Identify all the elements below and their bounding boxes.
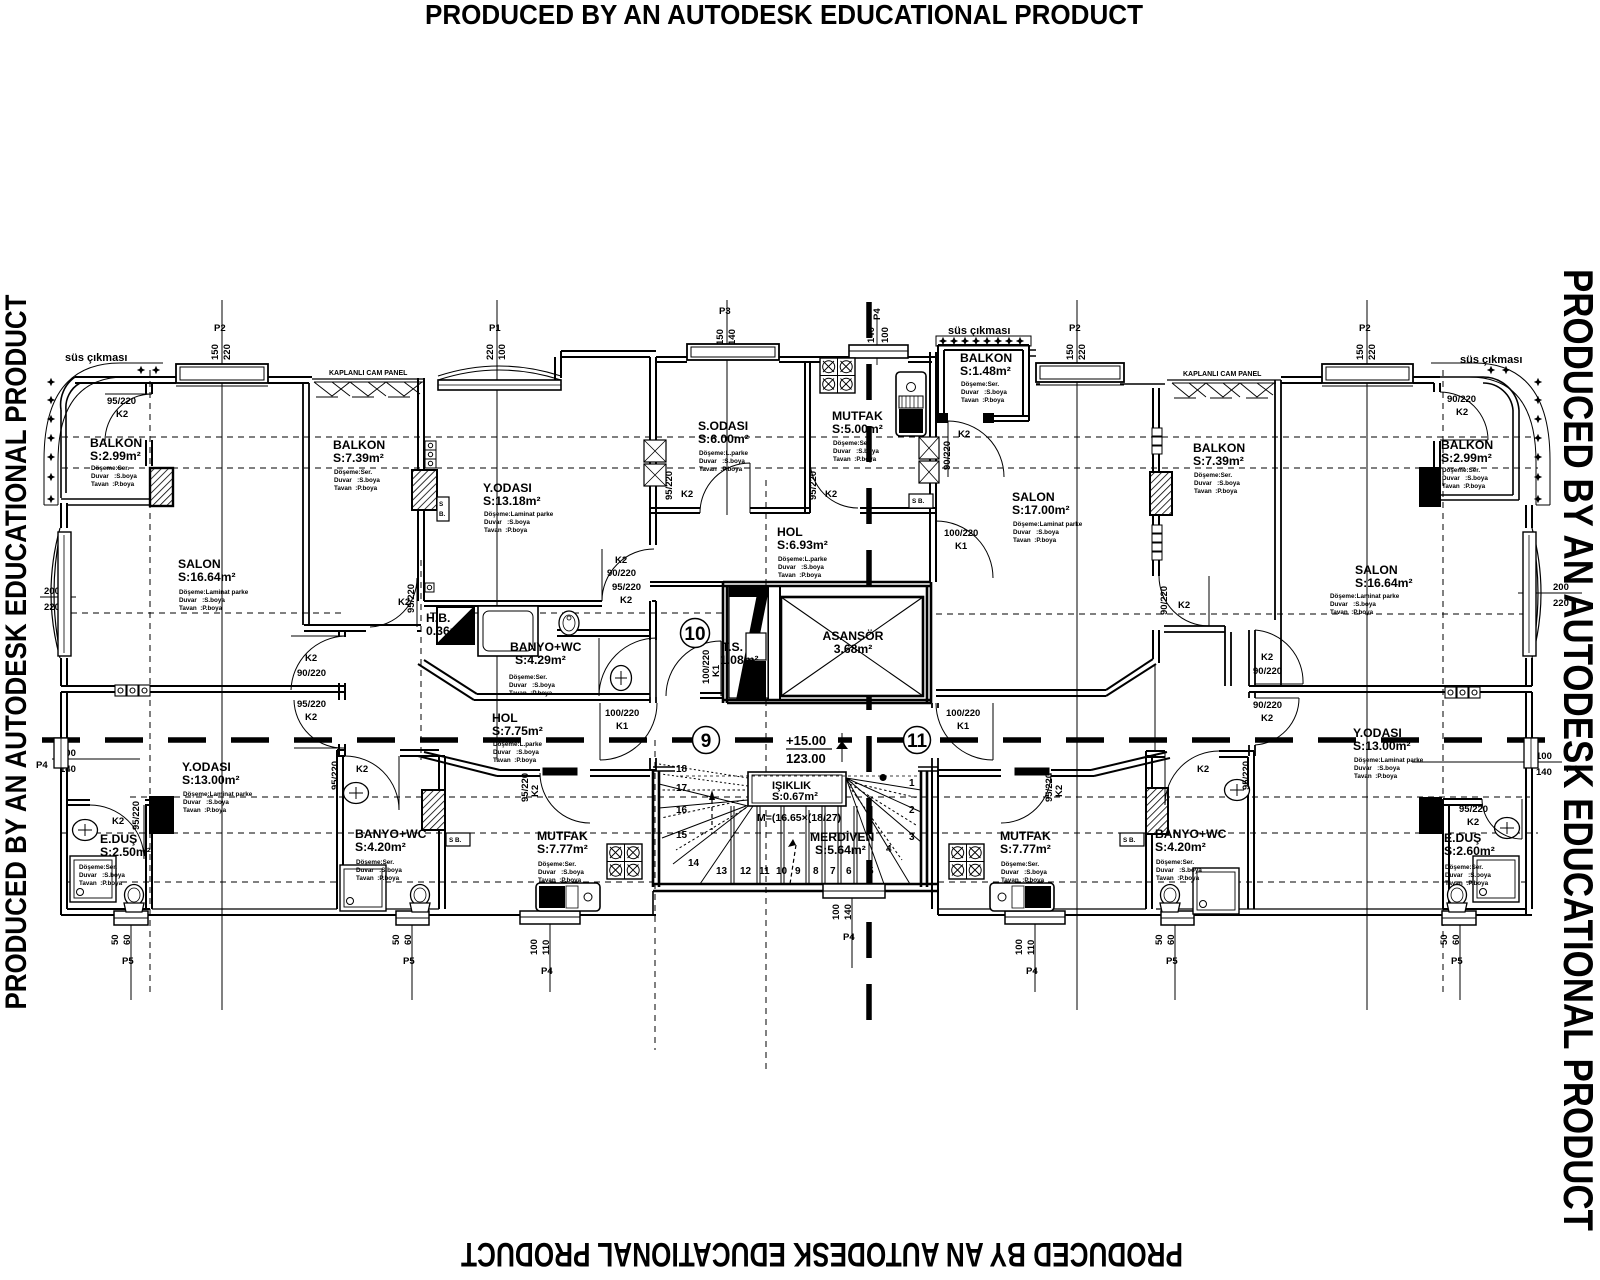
- svg-text:Döşeme:Ser.: Döşeme:Ser.: [1001, 861, 1039, 868]
- svg-text:PRODUCED BY AN AUTODESK EDUCAT: PRODUCED BY AN AUTODESK EDUCATIONAL PROD…: [425, 0, 1143, 30]
- svg-text:P4: P4: [1566, 764, 1578, 775]
- svg-text:90/220: 90/220: [942, 441, 953, 470]
- svg-text:S.ODASI: S.ODASI: [698, 419, 748, 433]
- svg-text:Döşeme:Laminat parke: Döşeme:Laminat parke: [1354, 757, 1424, 764]
- svg-text:HOL: HOL: [777, 525, 803, 539]
- svg-text:Duvar :S.boya: Duvar :S.boya: [1445, 872, 1491, 879]
- svg-text:Duvar :S.boya: Duvar :S.boya: [334, 477, 380, 484]
- svg-text:Döşeme:Laminat parke: Döşeme:Laminat parke: [484, 511, 554, 518]
- svg-text:123.00: 123.00: [786, 751, 826, 766]
- svg-text:Tavan :P.boya: Tavan :P.boya: [833, 456, 877, 463]
- svg-text:K2: K2: [1054, 785, 1065, 797]
- svg-text:4: 4: [886, 844, 892, 855]
- svg-text:SALON: SALON: [1355, 563, 1398, 577]
- svg-text:95/220: 95/220: [1459, 804, 1488, 815]
- svg-text:E.DUŞ: E.DUŞ: [100, 832, 137, 846]
- svg-text:K2: K2: [305, 712, 317, 723]
- svg-text:Tavan :P.boya: Tavan :P.boya: [778, 572, 822, 579]
- svg-text:220: 220: [1553, 598, 1569, 609]
- svg-text:S B.: S B.: [449, 837, 461, 844]
- svg-text:süs çıkması: süs çıkması: [948, 325, 1010, 337]
- svg-text:150: 150: [210, 344, 221, 360]
- svg-text:Döşeme:Laminat parke: Döşeme:Laminat parke: [1013, 521, 1083, 528]
- svg-text:K2: K2: [1261, 652, 1273, 663]
- svg-text:K2: K2: [305, 653, 317, 664]
- svg-text:Tavan :P.boya: Tavan :P.boya: [1330, 609, 1374, 616]
- svg-text:P4: P4: [872, 308, 883, 320]
- svg-text:Tavan :P.boya: Tavan :P.boya: [1445, 880, 1489, 887]
- svg-text:P2: P2: [1359, 323, 1371, 334]
- svg-text:9: 9: [701, 731, 712, 752]
- svg-text:3.68m²: 3.68m²: [834, 642, 873, 656]
- svg-text:Duvar :S.boya: Duvar :S.boya: [493, 749, 539, 756]
- svg-text:BALKON: BALKON: [333, 438, 385, 452]
- svg-text:10: 10: [776, 866, 788, 877]
- svg-text:1.08m²: 1.08m²: [720, 653, 759, 667]
- svg-text:0.36m²: 0.36m²: [426, 624, 465, 638]
- svg-text:Tavan :P.boya: Tavan :P.boya: [79, 880, 123, 887]
- svg-text:Döşeme:Ser.: Döşeme:Ser.: [538, 861, 576, 868]
- svg-text:60: 60: [122, 934, 133, 945]
- svg-text:50: 50: [391, 934, 402, 945]
- svg-text:SALON: SALON: [1012, 490, 1055, 504]
- svg-text:50: 50: [110, 934, 121, 945]
- svg-text:14: 14: [688, 858, 700, 869]
- svg-text:Duvar :S.boya: Duvar :S.boya: [1013, 529, 1059, 536]
- svg-text:220: 220: [485, 344, 496, 360]
- svg-text:P1: P1: [489, 323, 501, 334]
- svg-text:K2: K2: [1178, 600, 1190, 611]
- svg-text:Y.ODASI: Y.ODASI: [182, 760, 231, 774]
- svg-text:Döşeme:Ser.: Döşeme:Ser.: [356, 859, 394, 866]
- svg-text:BANYO+WC: BANYO+WC: [510, 640, 582, 654]
- svg-text:K2: K2: [1456, 407, 1468, 418]
- svg-text:BALKON: BALKON: [960, 351, 1012, 365]
- svg-text:P5: P5: [1451, 956, 1463, 967]
- svg-text:S:7.39m²: S:7.39m²: [1193, 454, 1244, 468]
- svg-text:Döşeme:Ser.: Döşeme:Ser.: [334, 469, 372, 476]
- svg-text:E.DUŞ: E.DUŞ: [1444, 831, 1481, 845]
- svg-text:Tavan :P.boya: Tavan :P.boya: [493, 757, 537, 764]
- svg-text:K2: K2: [1467, 817, 1479, 828]
- svg-text:95/220: 95/220: [131, 801, 142, 830]
- svg-text:K2: K2: [356, 764, 368, 775]
- svg-text:S:1.48m²: S:1.48m²: [960, 364, 1011, 378]
- svg-text:Duvar :S.boya: Duvar :S.boya: [1330, 601, 1376, 608]
- svg-text:Duvar :S.boya: Duvar :S.boya: [1194, 480, 1240, 487]
- svg-text:Duvar :S.boya: Duvar :S.boya: [1442, 475, 1488, 482]
- svg-text:+15.00: +15.00: [786, 733, 826, 748]
- svg-text:S:7.77m²: S:7.77m²: [1000, 842, 1051, 856]
- svg-text:T.S.: T.S.: [722, 640, 743, 654]
- svg-text:Döşeme:Ser.: Döşeme:Ser.: [1445, 864, 1483, 871]
- svg-text:MUTFAK: MUTFAK: [832, 409, 883, 423]
- svg-text:11: 11: [907, 731, 928, 752]
- svg-text:100/220: 100/220: [946, 708, 980, 719]
- svg-text:Duvar :S.boya: Duvar :S.boya: [179, 597, 225, 604]
- svg-text:Döşeme:Laminat parke: Döşeme:Laminat parke: [183, 791, 253, 798]
- svg-text:95/220: 95/220: [330, 761, 341, 790]
- svg-text:90/220: 90/220: [297, 668, 326, 679]
- svg-text:95/220: 95/220: [297, 699, 326, 710]
- svg-text:100: 100: [497, 344, 508, 360]
- svg-text:P2: P2: [214, 323, 226, 334]
- svg-text:BALKON: BALKON: [1193, 441, 1245, 455]
- svg-text:S:4.20m²: S:4.20m²: [1155, 840, 1206, 854]
- svg-text:P5: P5: [122, 956, 134, 967]
- svg-text:140: 140: [727, 329, 738, 345]
- svg-text:Duvar :S.boya: Duvar :S.boya: [961, 389, 1007, 396]
- svg-text:220: 220: [222, 344, 233, 360]
- svg-text:Tavan :P.boya: Tavan :P.boya: [356, 875, 400, 882]
- svg-text:Y.ODASI: Y.ODASI: [1353, 726, 1402, 740]
- svg-text:90/220: 90/220: [607, 568, 636, 579]
- svg-text:100: 100: [880, 327, 891, 343]
- svg-text:Döşeme:Ser.: Döşeme:Ser.: [961, 381, 999, 388]
- svg-text:Döşeme:Laminat parke: Döşeme:Laminat parke: [179, 589, 249, 596]
- svg-text:Döşeme:Laminat parke: Döşeme:Laminat parke: [1330, 593, 1400, 600]
- svg-text:Duvar :S.boya: Duvar :S.boya: [833, 448, 879, 455]
- svg-text:95/220: 95/220: [808, 471, 819, 500]
- svg-text:P5: P5: [1166, 956, 1178, 967]
- svg-text:150: 150: [1355, 344, 1366, 360]
- svg-text:Döşeme:L.parke: Döşeme:L.parke: [778, 556, 827, 563]
- svg-text:10: 10: [684, 624, 705, 645]
- svg-text:90/220: 90/220: [1447, 394, 1476, 405]
- svg-text:Tavan :P.boya: Tavan :P.boya: [509, 690, 553, 697]
- svg-text:140: 140: [843, 904, 854, 920]
- svg-text:S:2.99m²: S:2.99m²: [90, 449, 141, 463]
- svg-text:S:5.64m²: S:5.64m²: [815, 843, 866, 857]
- svg-text:Tavan :P.boya: Tavan :P.boya: [1442, 483, 1486, 490]
- svg-text:110: 110: [541, 940, 552, 955]
- svg-text:12: 12: [740, 866, 752, 877]
- svg-text:PRODUCED BY AN AUTODESK EDUCAT: PRODUCED BY AN AUTODESK EDUCATIONAL PROD…: [1555, 269, 1600, 1231]
- svg-text:BANYO+WC: BANYO+WC: [1155, 827, 1227, 841]
- svg-text:S B.: S B.: [1123, 837, 1135, 844]
- svg-text:P2: P2: [1069, 323, 1081, 334]
- svg-text:Duvar :S.boya: Duvar :S.boya: [356, 867, 402, 874]
- svg-text:60: 60: [403, 934, 414, 945]
- svg-text:MUTFAK: MUTFAK: [537, 829, 588, 843]
- svg-text:S: S: [439, 501, 443, 508]
- svg-text:K2: K2: [116, 409, 128, 420]
- svg-text:Tavan :P.boya: Tavan :P.boya: [961, 397, 1005, 404]
- svg-text:18: 18: [676, 764, 688, 775]
- svg-text:K2: K2: [615, 555, 627, 566]
- svg-text:200: 200: [1553, 582, 1569, 593]
- svg-text:Duvar :S.boya: Duvar :S.boya: [699, 458, 745, 465]
- svg-text:HOL: HOL: [492, 711, 518, 725]
- svg-text:Duvar :S.boya: Duvar :S.boya: [509, 682, 555, 689]
- svg-text:süs çıkması: süs çıkması: [65, 352, 127, 364]
- svg-text:95/220: 95/220: [406, 584, 417, 613]
- svg-text:7: 7: [830, 866, 836, 877]
- svg-text:Duvar :S.boya: Duvar :S.boya: [778, 564, 824, 571]
- svg-text:MERDİVEN: MERDİVEN: [810, 829, 874, 844]
- svg-text:ASANSÖR: ASANSÖR: [823, 628, 884, 643]
- svg-text:S:7.75m²: S:7.75m²: [492, 724, 543, 738]
- svg-text:Döşeme:Ser.: Döşeme:Ser.: [1442, 467, 1480, 474]
- svg-text:60: 60: [1451, 934, 1462, 945]
- svg-text:15: 15: [676, 830, 688, 841]
- svg-text:2: 2: [909, 805, 915, 816]
- svg-text:90/220: 90/220: [1253, 700, 1282, 711]
- svg-text:60: 60: [1166, 934, 1177, 945]
- svg-text:17: 17: [676, 783, 688, 794]
- svg-text:90/220: 90/220: [1253, 666, 1282, 677]
- svg-text:95/220: 95/220: [1241, 761, 1252, 790]
- svg-text:13: 13: [716, 866, 728, 877]
- svg-text:95/220: 95/220: [664, 471, 675, 500]
- svg-text:110: 110: [1026, 940, 1037, 955]
- svg-text:süs çıkması: süs çıkması: [1460, 354, 1522, 366]
- svg-text:140: 140: [1536, 767, 1552, 778]
- svg-text:5: 5: [868, 866, 874, 877]
- svg-text:220: 220: [1077, 344, 1088, 360]
- svg-text:Duvar :S.boya: Duvar :S.boya: [183, 799, 229, 806]
- svg-text:S:6.93m²: S:6.93m²: [777, 538, 828, 552]
- svg-text:S:13.18m²: S:13.18m²: [483, 494, 541, 508]
- svg-text:S:4.20m²: S:4.20m²: [355, 840, 406, 854]
- svg-text:S:13.00m²: S:13.00m²: [1353, 739, 1411, 753]
- svg-text:K2: K2: [958, 429, 970, 440]
- svg-text:K2: K2: [681, 489, 693, 500]
- svg-text:9: 9: [795, 866, 801, 877]
- svg-text:50: 50: [1439, 934, 1450, 945]
- svg-text:Döşeme:Ser.: Döşeme:Ser.: [833, 440, 871, 447]
- svg-text:Döşeme:Ser.: Döşeme:Ser.: [1156, 859, 1194, 866]
- svg-text:KAPLANLI CAM PANEL: KAPLANLI CAM PANEL: [1183, 371, 1262, 378]
- svg-text:Tavan :P.boya: Tavan :P.boya: [538, 877, 582, 884]
- svg-text:100: 100: [1014, 939, 1025, 955]
- svg-text:K2: K2: [825, 489, 837, 500]
- svg-text:Duvar :S.boya: Duvar :S.boya: [538, 869, 584, 876]
- svg-text:Tavan :P.boya: Tavan :P.boya: [334, 485, 378, 492]
- svg-text:S:7.39m²: S:7.39m²: [333, 451, 384, 465]
- svg-text:Tavan :P.boya: Tavan :P.boya: [1013, 537, 1057, 544]
- svg-text:Duvar :S.boya: Duvar :S.boya: [79, 872, 125, 879]
- svg-text:Duvar :S.boya: Duvar :S.boya: [1354, 765, 1400, 772]
- svg-text:K1: K1: [955, 541, 968, 552]
- svg-text:M=(16.65×(18/27): M=(16.65×(18/27): [757, 812, 841, 824]
- svg-text:H.B.: H.B.: [426, 611, 450, 625]
- svg-text:Tavan :P.boya: Tavan :P.boya: [1354, 773, 1398, 780]
- svg-text:100/220: 100/220: [944, 528, 978, 539]
- svg-text:95/220: 95/220: [612, 582, 641, 593]
- svg-text:Döşeme:L.parke: Döşeme:L.parke: [493, 741, 542, 748]
- svg-text:Döşeme:Ser.: Döşeme:Ser.: [91, 465, 129, 472]
- svg-text:K1: K1: [616, 721, 629, 732]
- svg-text:Döşeme:Ser.: Döşeme:Ser.: [79, 864, 117, 871]
- svg-text:1: 1: [909, 778, 915, 789]
- svg-text:S:13.00m²: S:13.00m²: [182, 773, 240, 787]
- svg-text:95/220: 95/220: [107, 396, 136, 407]
- svg-text:SALON: SALON: [178, 557, 221, 571]
- svg-text:100: 100: [831, 904, 842, 920]
- svg-text:S:16.64m²: S:16.64m²: [1355, 576, 1413, 590]
- svg-text:Tavan :P.boya: Tavan :P.boya: [1194, 488, 1238, 495]
- svg-text:P4: P4: [36, 760, 48, 771]
- svg-text:S:2.60m²: S:2.60m²: [1444, 844, 1495, 858]
- svg-text:8: 8: [813, 866, 819, 877]
- svg-text:Duvar :S.boya: Duvar :S.boya: [1156, 867, 1202, 874]
- svg-text:S:2.50m²: S:2.50m²: [100, 845, 151, 859]
- svg-text:K1: K1: [957, 721, 970, 732]
- svg-text:Döşeme:Ser.: Döşeme:Ser.: [1194, 472, 1232, 479]
- svg-text:BANYO+WC: BANYO+WC: [355, 827, 427, 841]
- svg-text:16: 16: [676, 805, 688, 816]
- svg-text:S:6.00m²: S:6.00m²: [698, 432, 749, 446]
- svg-text:S:16.64m²: S:16.64m²: [178, 570, 236, 584]
- svg-text:S:17.00m²: S:17.00m²: [1012, 503, 1070, 517]
- svg-text:K2: K2: [1261, 713, 1273, 724]
- svg-text:B.: B.: [439, 511, 446, 518]
- svg-text:6: 6: [846, 866, 852, 877]
- svg-text:BALKON: BALKON: [90, 436, 142, 450]
- svg-text:S:4.29m²: S:4.29m²: [515, 653, 566, 667]
- svg-text:P5: P5: [403, 956, 415, 967]
- svg-text:50: 50: [1154, 934, 1165, 945]
- svg-text:P4: P4: [1026, 966, 1038, 977]
- svg-text:Döşeme:Ser.: Döşeme:Ser.: [509, 674, 547, 681]
- svg-text:P4: P4: [541, 966, 553, 977]
- svg-text:K2: K2: [1197, 764, 1209, 775]
- svg-text:Y.ODASI: Y.ODASI: [483, 481, 532, 495]
- svg-text:PRODUCED BY AN AUTODESK EDUCAT: PRODUCED BY AN AUTODESK EDUCATIONAL PROD…: [461, 1235, 1183, 1273]
- svg-text:90/220: 90/220: [1159, 586, 1170, 615]
- svg-text:Tavan :P.boya: Tavan :P.boya: [91, 481, 135, 488]
- svg-text:140: 140: [866, 327, 877, 343]
- svg-text:11: 11: [759, 866, 770, 877]
- svg-text:Tavan :P.boya: Tavan :P.boya: [699, 466, 743, 473]
- svg-text:BALKON: BALKON: [1441, 438, 1493, 452]
- svg-text:3: 3: [909, 832, 915, 843]
- svg-text:MUTFAK: MUTFAK: [1000, 829, 1051, 843]
- svg-text:S:2.99m²: S:2.99m²: [1441, 451, 1492, 465]
- svg-text:P3: P3: [719, 306, 731, 317]
- svg-text:KAPLANLI CAM PANEL: KAPLANLI CAM PANEL: [329, 370, 408, 377]
- svg-text:Duvar :S.boya: Duvar :S.boya: [91, 473, 137, 480]
- svg-text:Döşeme:L.parke: Döşeme:L.parke: [699, 450, 748, 457]
- svg-text:Tavan :P.boya: Tavan :P.boya: [1001, 877, 1045, 884]
- svg-text:S B.: S B.: [912, 498, 924, 505]
- svg-text:150: 150: [1065, 344, 1076, 360]
- svg-text:Duvar :S.boya: Duvar :S.boya: [1001, 869, 1047, 876]
- svg-text:K2: K2: [530, 785, 541, 797]
- svg-text:Tavan :P.boya: Tavan :P.boya: [1156, 875, 1200, 882]
- svg-text:220: 220: [1367, 344, 1378, 360]
- svg-text:S:5.00m²: S:5.00m²: [832, 422, 883, 436]
- svg-text:100: 100: [529, 939, 540, 955]
- svg-text:PRODUCED BY AN AUTODESK EDUCAT: PRODUCED BY AN AUTODESK EDUCATIONAL PROD…: [0, 295, 33, 1010]
- svg-text:S:0.67m²: S:0.67m²: [772, 791, 818, 803]
- svg-text:100/220: 100/220: [605, 708, 639, 719]
- svg-text:K2: K2: [620, 595, 632, 606]
- svg-text:Tavan :P.boya: Tavan :P.boya: [179, 605, 223, 612]
- svg-text:S:7.77m²: S:7.77m²: [537, 842, 588, 856]
- svg-text:P4: P4: [843, 932, 855, 943]
- svg-text:Tavan :P.boya: Tavan :P.boya: [484, 527, 528, 534]
- svg-text:Duvar :S.boya: Duvar :S.boya: [484, 519, 530, 526]
- svg-text:150: 150: [715, 329, 726, 345]
- svg-text:K2: K2: [112, 816, 124, 827]
- svg-text:Tavan :P.boya: Tavan :P.boya: [183, 807, 227, 814]
